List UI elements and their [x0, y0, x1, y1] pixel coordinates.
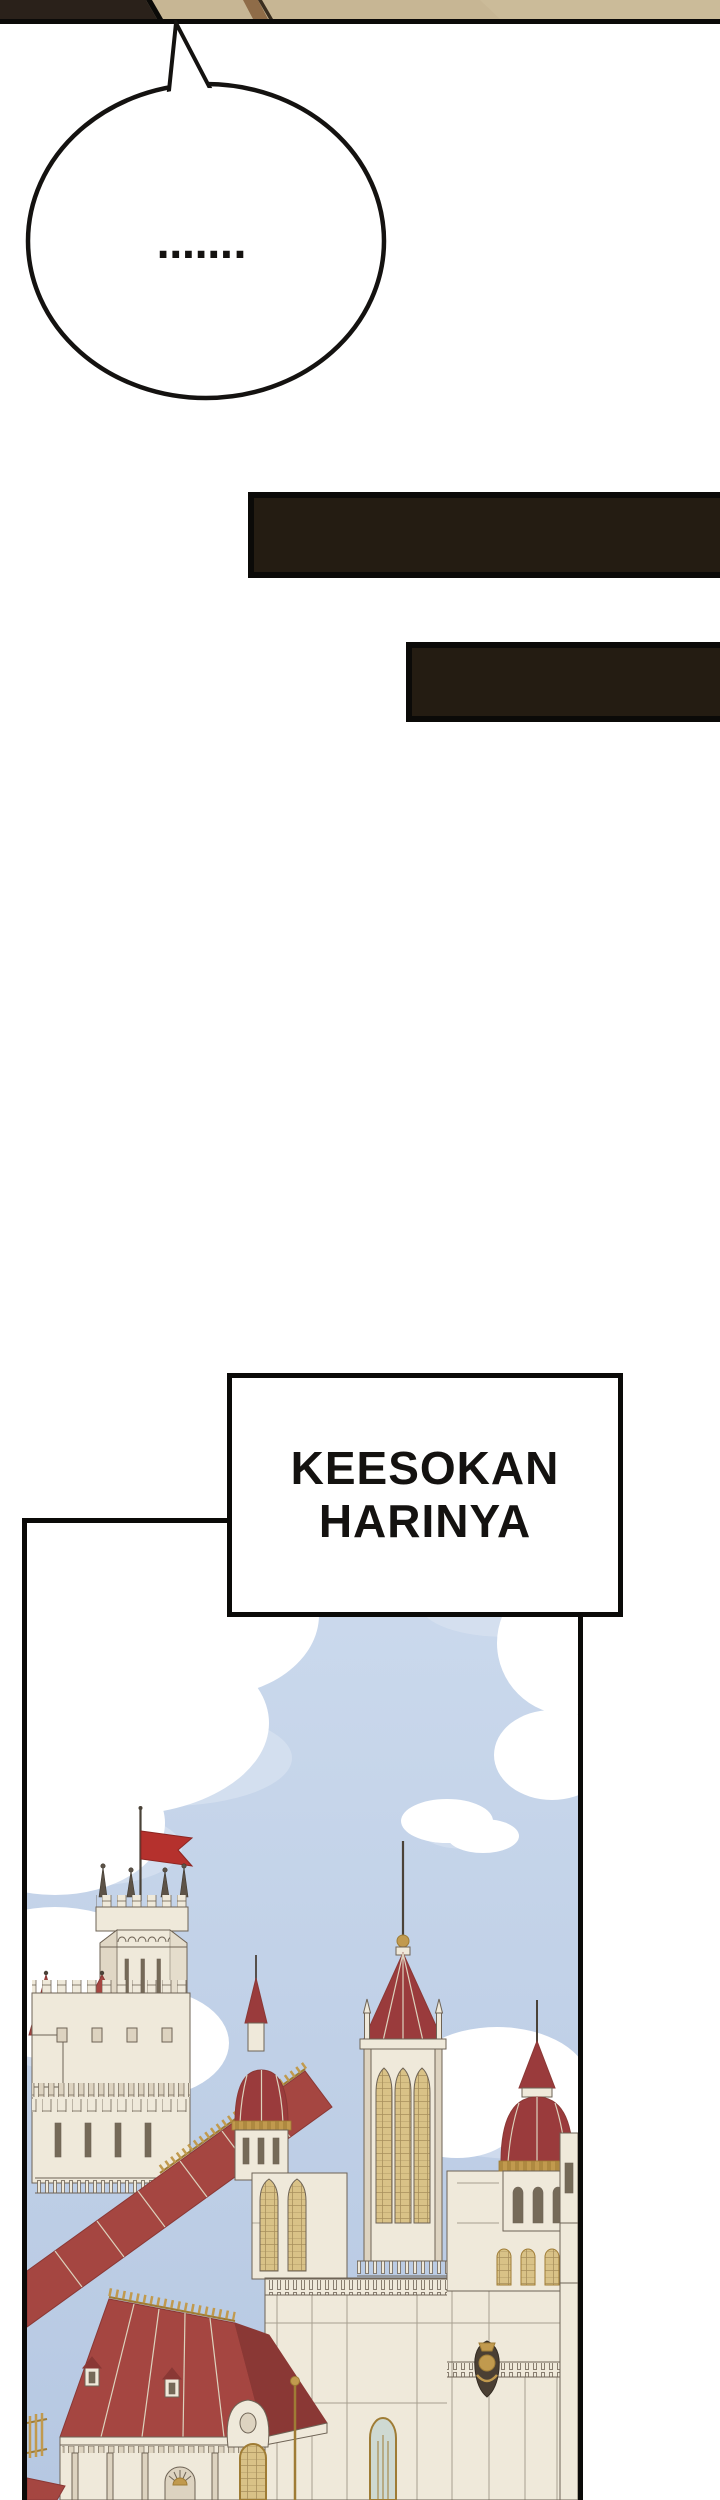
lower-keep-crenellation — [32, 1980, 190, 1994]
lower-keep — [29, 1971, 190, 2193]
facade-balustrade — [267, 2280, 447, 2295]
right-edge-tower — [560, 2133, 578, 2500]
castle-illustration — [27, 1523, 578, 2500]
tower-balcony — [357, 2261, 449, 2276]
webtoon-page: ……. — [0, 0, 720, 2500]
mid-wall — [252, 2173, 347, 2279]
narration-bar-bottom — [406, 642, 720, 722]
previous-panel-dark-area — [0, 0, 157, 19]
corner-turret-left — [32, 2035, 63, 2087]
arched-windows-right — [497, 2249, 559, 2285]
facade-balustrade-right — [447, 2363, 578, 2377]
gothic-window — [288, 2179, 306, 2271]
flag-pole-tip — [139, 1806, 143, 1810]
machicolation-band — [32, 2083, 190, 2097]
spire-cornice — [360, 2039, 446, 2049]
gothic-window — [376, 2068, 392, 2223]
castle-panel — [22, 1518, 583, 2500]
narration-bar-top — [248, 492, 720, 578]
foreground-wall — [60, 2445, 265, 2500]
spire-gold-ball — [397, 1935, 409, 1947]
caption-box: KEESOKAN HARINYA — [227, 1373, 623, 1617]
gothic-window — [414, 2068, 430, 2223]
caption-line-2: HARINYA — [319, 1495, 531, 1548]
keep-arcade-band — [117, 1931, 170, 1945]
gold-arch-window — [240, 2444, 266, 2500]
gothic-window — [395, 2068, 411, 2223]
caption-line-1: KEESOKAN — [291, 1442, 560, 1495]
speech-bubble: ……. — [10, 20, 410, 420]
speech-bubble-text: ……. — [157, 223, 247, 267]
previous-panel-light-area — [480, 0, 720, 19]
small-dome-gold-band — [232, 2121, 291, 2130]
sunburst-door — [165, 2467, 195, 2500]
keep-parapet — [96, 1907, 188, 1931]
keep-crenellation — [96, 1895, 188, 1908]
gothic-window — [260, 2179, 278, 2271]
